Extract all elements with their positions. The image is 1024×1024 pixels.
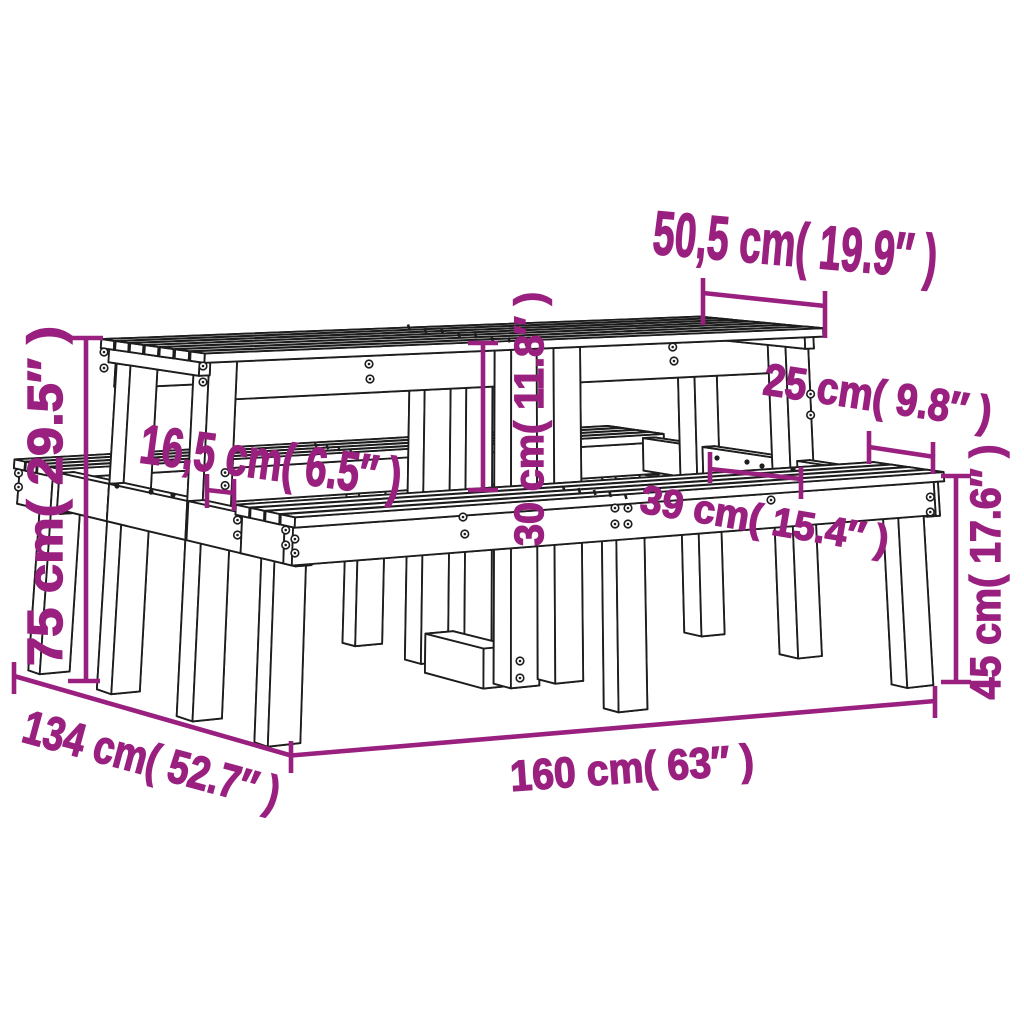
- svg-text:30 cm( 11.8″ ): 30 cm( 11.8″ ): [506, 292, 552, 546]
- svg-text:45 cm( 17.6″ ): 45 cm( 17.6″ ): [962, 445, 1010, 700]
- svg-text:75 cm( 29.5″ ): 75 cm( 29.5″ ): [19, 326, 73, 666]
